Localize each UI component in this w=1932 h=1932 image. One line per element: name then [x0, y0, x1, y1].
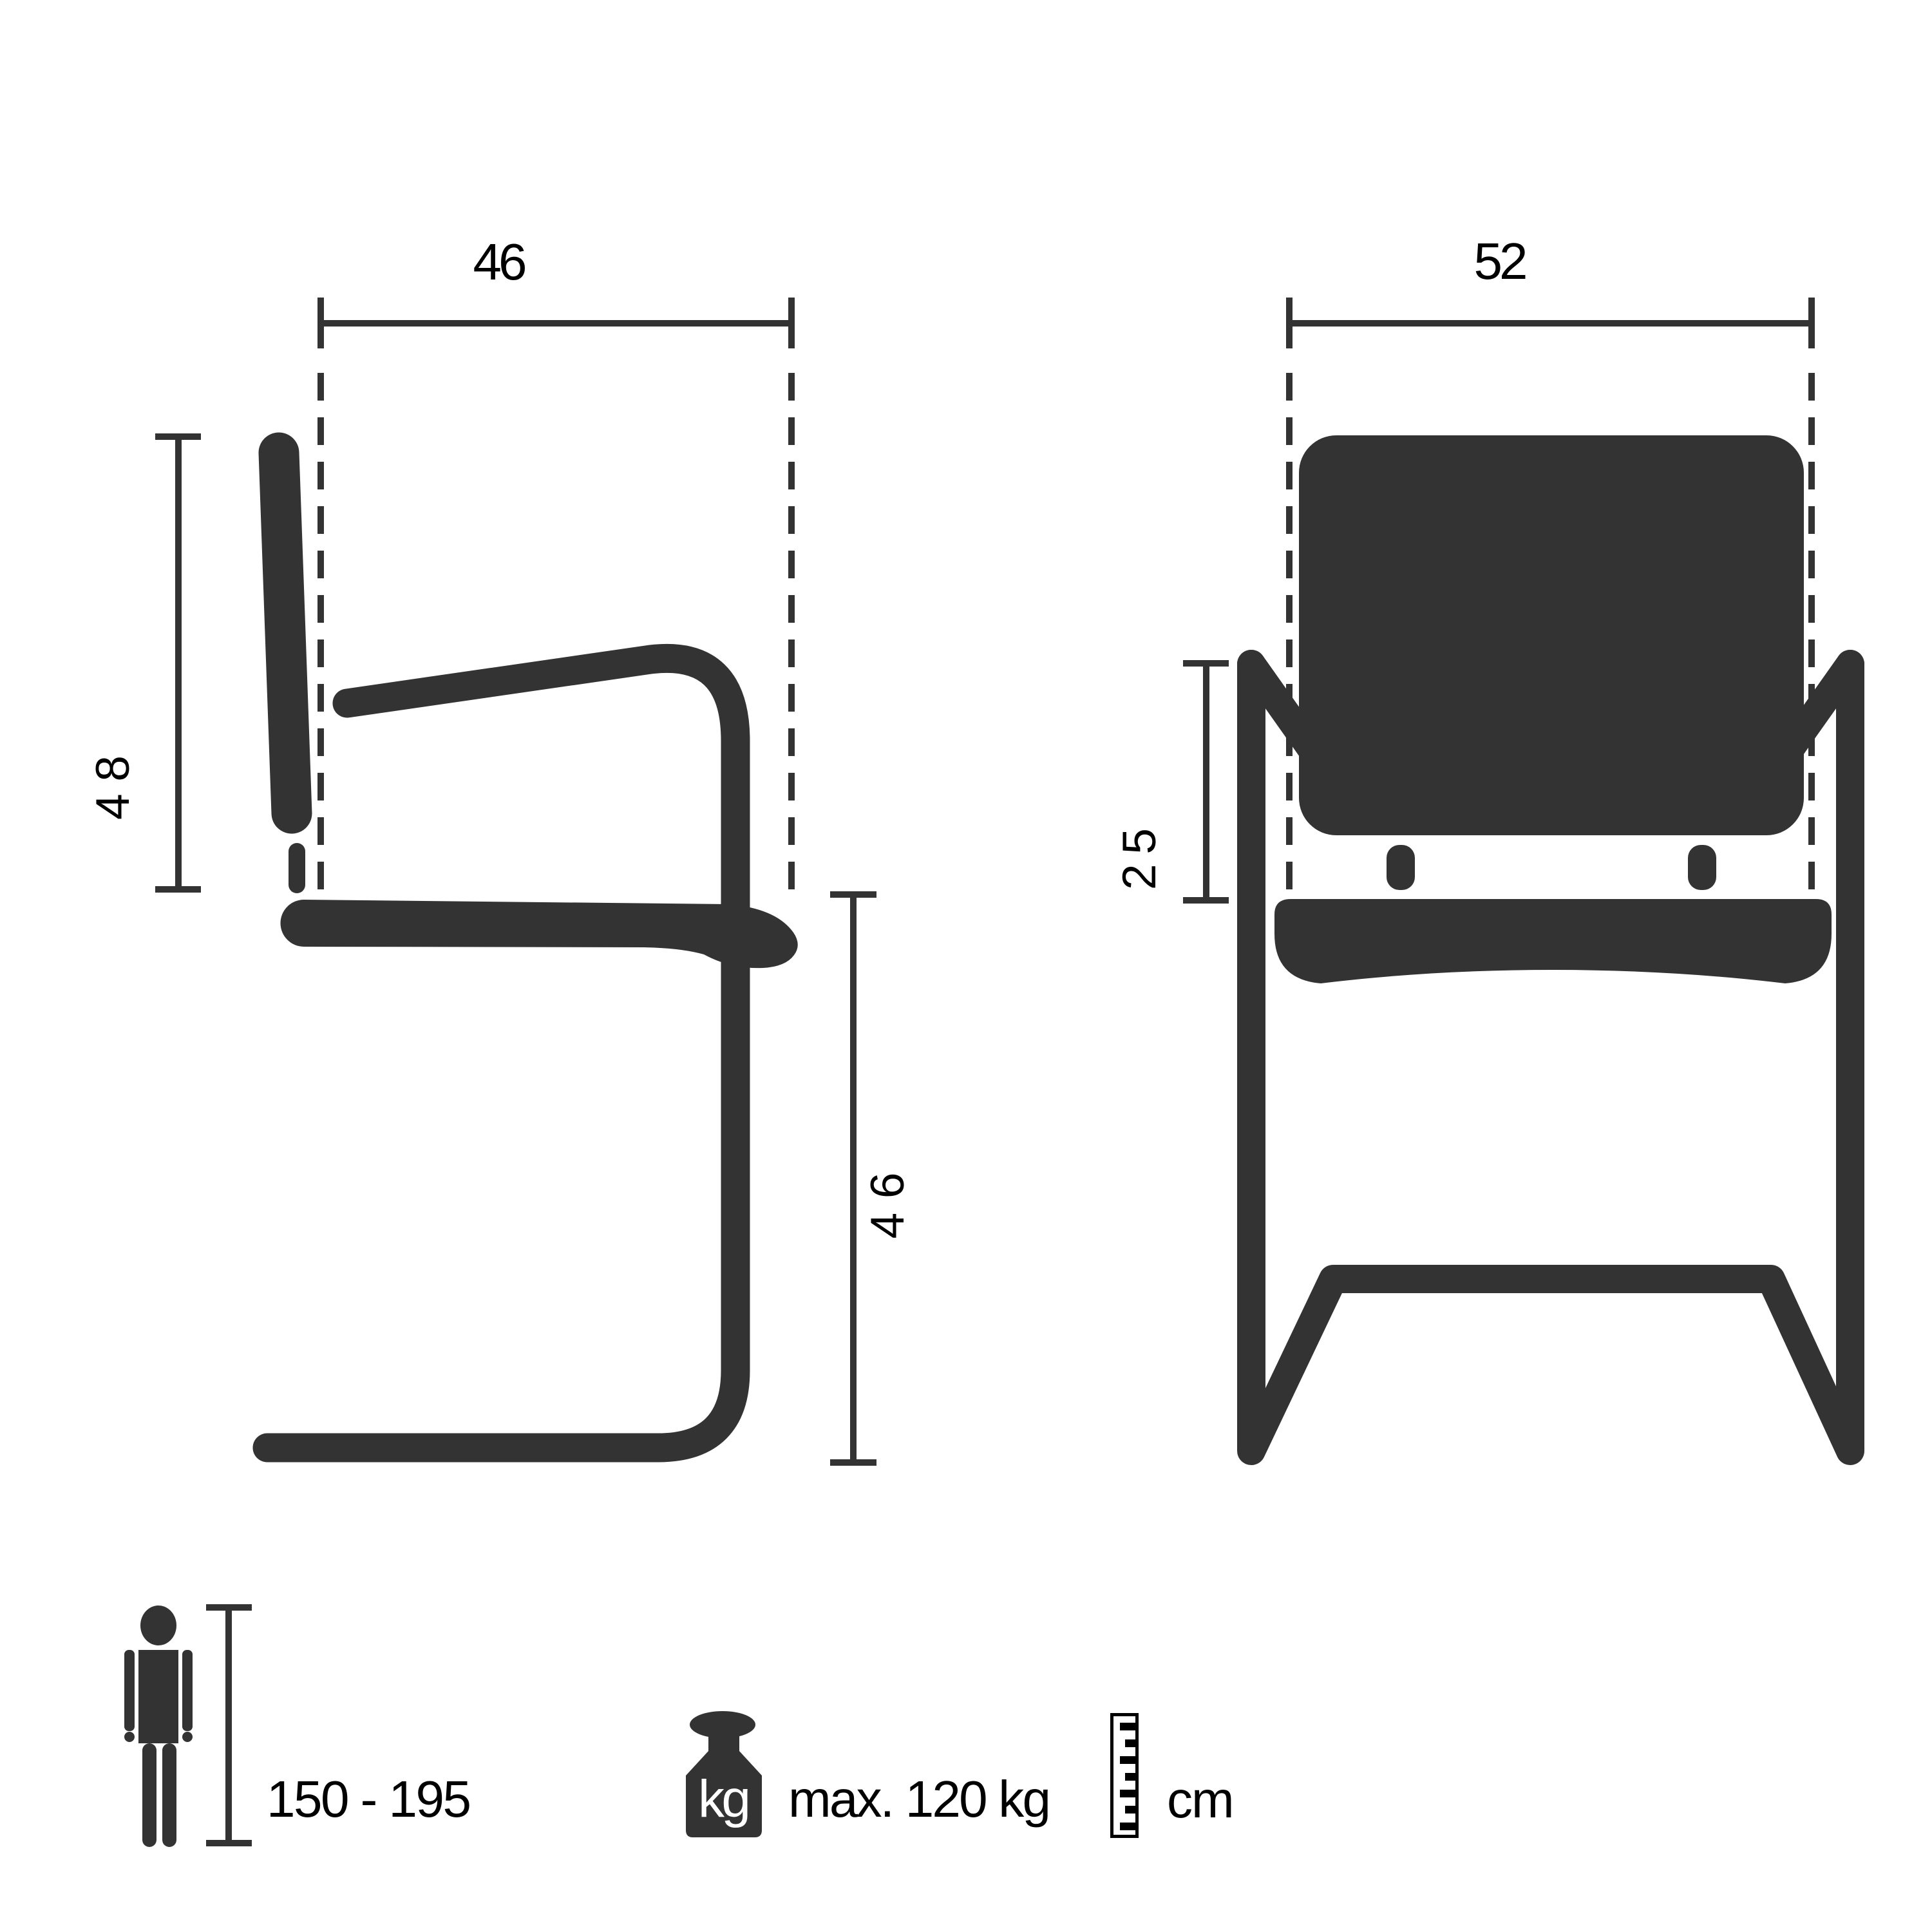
svg-text:kg: kg	[698, 1770, 751, 1828]
svg-text:52: 52	[1474, 232, 1526, 290]
svg-text:150 - 195: 150 - 195	[267, 1770, 471, 1828]
svg-text:cm: cm	[1167, 1771, 1233, 1828]
svg-text:46: 46	[473, 233, 525, 290]
svg-text:max. 120 kg: max. 120 kg	[788, 1770, 1051, 1828]
